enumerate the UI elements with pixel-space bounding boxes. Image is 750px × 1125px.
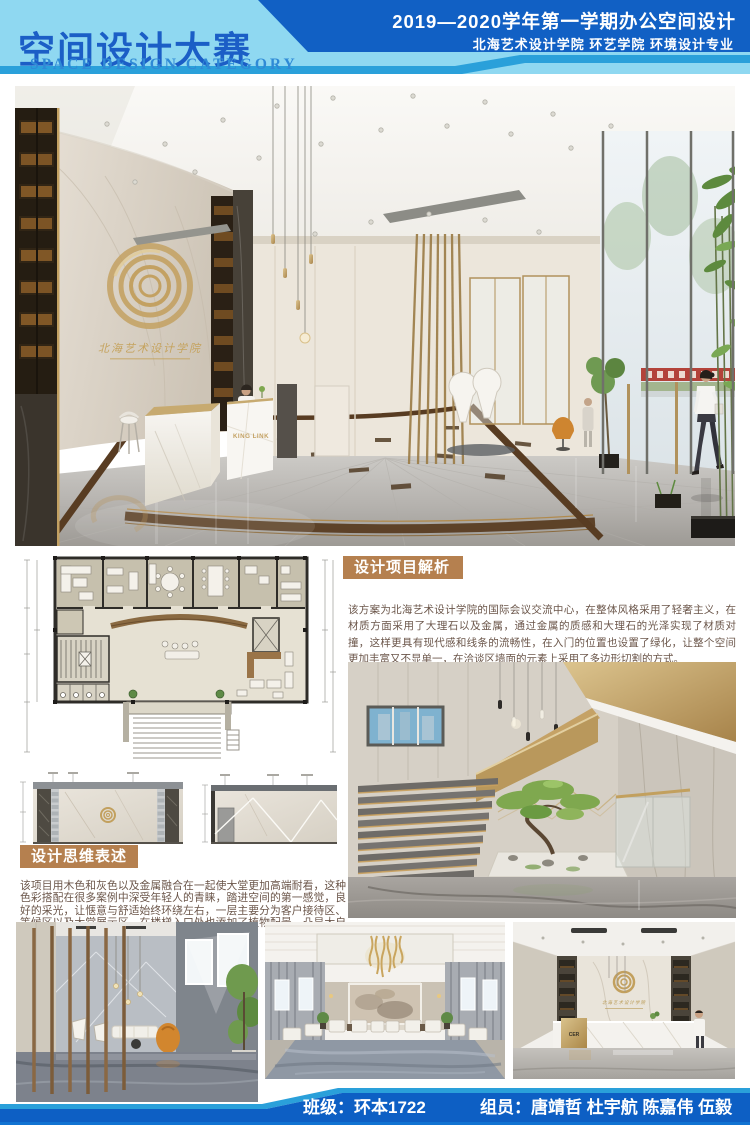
hero-lobby-rendering: 北海艺术设计学院 xyxy=(15,86,735,546)
foreground-floor xyxy=(348,877,736,918)
members-label: 组员：唐靖哲 杜宇航 陈嘉伟 伍毅 xyxy=(480,1099,732,1117)
lounge-wall-elevation xyxy=(202,774,337,844)
lobby-scene: 北海艺术设计学院 xyxy=(15,86,735,546)
wall-calligraphy: 北海艺术设计学院 xyxy=(602,1000,646,1005)
staircase-rendering xyxy=(348,662,736,918)
carpet xyxy=(265,1040,505,1079)
window xyxy=(368,707,443,745)
plant xyxy=(216,690,224,698)
floor-plan xyxy=(15,552,340,768)
footer-bar: 班级：环本1722 组员：唐靖哲 杜宇航 陈嘉伟 伍毅 xyxy=(0,1080,750,1125)
lounge-rendering xyxy=(16,922,258,1102)
upper-rooms xyxy=(57,560,305,610)
competition-poster: 空间设计大赛 SPACE DESIGN CATEGORY 2019—2020学年… xyxy=(0,0,750,1125)
reception-wall-elevation xyxy=(20,772,183,844)
floor xyxy=(513,1048,735,1079)
meeting-room-rendering xyxy=(265,922,505,1079)
section-label-thinking-bar xyxy=(133,845,138,868)
poster-title-en: SPACE DESIGN CATEGORY xyxy=(30,56,298,74)
term-line: 2019—2020学年第一学期办公空间设计 xyxy=(392,8,736,34)
reception-front-rendering: 北海艺术设计学院 CER xyxy=(513,922,735,1079)
elevation-drawings xyxy=(15,770,345,848)
header-banner: 空间设计大赛 SPACE DESIGN CATEGORY 2019—2020学年… xyxy=(0,0,750,84)
analysis-text: 该方案为北海艺术设计学院的国际会议交流中心，在整体风格采用了轻奢主义，在材质方面… xyxy=(348,602,736,668)
plant xyxy=(129,690,137,698)
floor-plan-drawing xyxy=(15,552,340,768)
section-label-analysis-bar xyxy=(458,556,463,579)
desk-logo: KING LINK xyxy=(233,433,269,440)
wall-calligraphy: 北海艺术设计学院 xyxy=(98,342,202,355)
section-label-thinking: 设计思维表述 xyxy=(20,845,138,868)
section-label-analysis: 设计项目解析 xyxy=(343,556,461,579)
glass-balustrade xyxy=(616,790,690,867)
class-label: 班级：环本1722 xyxy=(303,1099,426,1117)
feature-wall: 北海艺术设计学院 xyxy=(557,956,691,1028)
stool xyxy=(119,413,139,454)
counter-sign: CER xyxy=(569,1032,580,1038)
left-shelving xyxy=(15,108,60,546)
school-line: 北海艺术设计学院 环艺学院 环境设计专业 xyxy=(473,34,734,53)
